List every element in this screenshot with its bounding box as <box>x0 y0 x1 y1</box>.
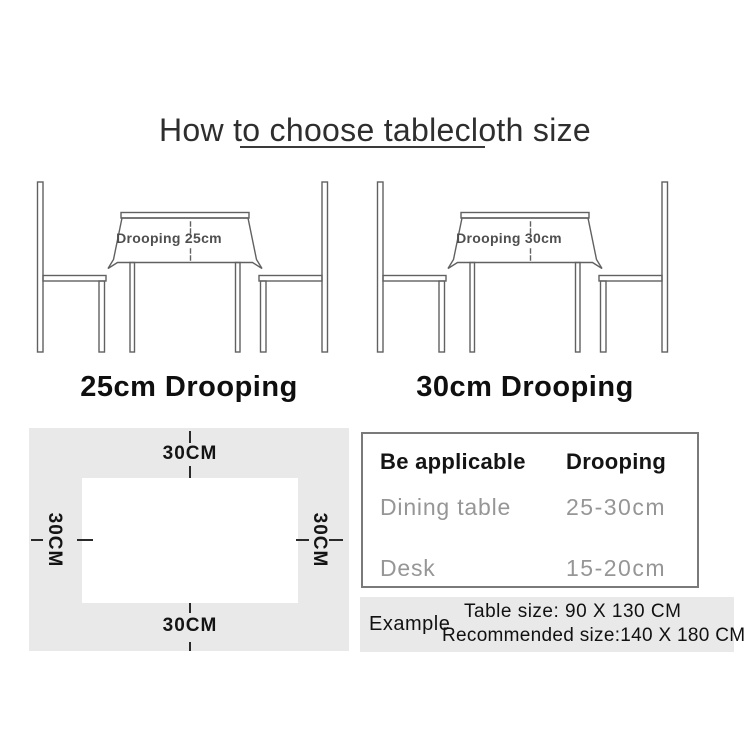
tablecloth-diagram-25cm: Drooping 25cm <box>20 170 350 356</box>
margin-label-right: 30CM <box>308 513 330 568</box>
dash-left-outer <box>31 539 43 541</box>
table-surface-rect <box>82 478 298 603</box>
example-strip: Example Table size: 90 X 130 CM Recommen… <box>360 597 734 652</box>
spec-row-dining-table: Dining table <box>380 494 511 521</box>
drooping-spec-table: Be applicable Drooping Dining table 25-3… <box>361 432 699 588</box>
spec-row-desk-value: 15-20cm <box>566 555 666 582</box>
dash-bottom-inner <box>189 603 191 613</box>
example-recommended-size: Recommended size:140 X 180 CM <box>442 625 745 647</box>
title-underline <box>240 146 485 148</box>
dash-left-inner <box>77 539 93 541</box>
example-table-size: Table size: 90 X 130 CM <box>464 601 681 623</box>
example-label: Example <box>369 613 450 636</box>
margin-label-top: 30CM <box>140 444 240 464</box>
dash-bottom-outer <box>189 642 191 651</box>
infographic-page: How to choose tablecloth size Drooping 2… <box>0 0 750 750</box>
table-chairs-illustration <box>360 170 690 356</box>
size-margin-panel: 30CM 30CM 30CM 30CM <box>29 428 349 651</box>
page-title: How to choose tablecloth size <box>0 112 750 149</box>
dash-top-outer <box>189 431 191 443</box>
spec-header-drooping: Drooping <box>566 449 666 475</box>
margin-label-left: 30CM <box>43 513 65 568</box>
dash-right-outer <box>329 539 343 541</box>
spec-row-dining-value: 25-30cm <box>566 494 666 521</box>
caption-30cm-drooping: 30cm Drooping <box>365 371 685 404</box>
drooping-measure-label: Drooping 30cm <box>428 230 590 246</box>
margin-label-bottom: 30CM <box>140 616 240 636</box>
spec-row-desk: Desk <box>380 555 436 582</box>
dash-top-inner <box>189 466 191 478</box>
caption-25cm-drooping: 25cm Drooping <box>29 371 349 404</box>
spec-header-applicable: Be applicable <box>380 449 526 475</box>
table-chairs-illustration <box>20 170 350 356</box>
tablecloth-diagram-30cm: Drooping 30cm <box>360 170 690 356</box>
drooping-measure-label: Drooping 25cm <box>88 230 250 246</box>
